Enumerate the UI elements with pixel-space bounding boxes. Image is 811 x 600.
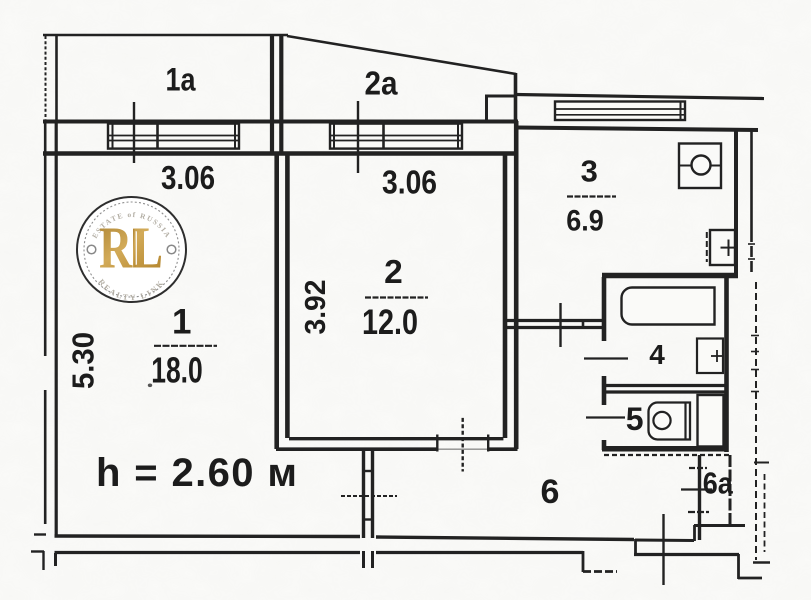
svg-text:6: 6: [541, 473, 560, 511]
svg-text:3: 3: [581, 154, 598, 189]
svg-text:5: 5: [626, 401, 644, 437]
svg-text:4: 4: [649, 339, 665, 370]
svg-text:2a: 2a: [365, 65, 399, 102]
svg-text:5.30: 5.30: [66, 332, 101, 389]
svg-text:1a: 1a: [166, 62, 196, 98]
svg-text:3.06: 3.06: [161, 159, 215, 196]
svg-text:3.06: 3.06: [382, 164, 437, 201]
svg-text:6.9: 6.9: [566, 205, 604, 238]
svg-text:18.0: 18.0: [151, 350, 203, 391]
svg-text:12.0: 12.0: [362, 303, 418, 342]
svg-text:6a: 6a: [703, 466, 734, 501]
svg-text:2: 2: [384, 254, 403, 291]
svg-text:1: 1: [172, 303, 191, 342]
svg-text:3.92: 3.92: [300, 280, 332, 335]
svg-text:h = 2.60 м: h = 2.60 м: [96, 451, 297, 495]
svg-text:RL: RL: [99, 215, 163, 281]
